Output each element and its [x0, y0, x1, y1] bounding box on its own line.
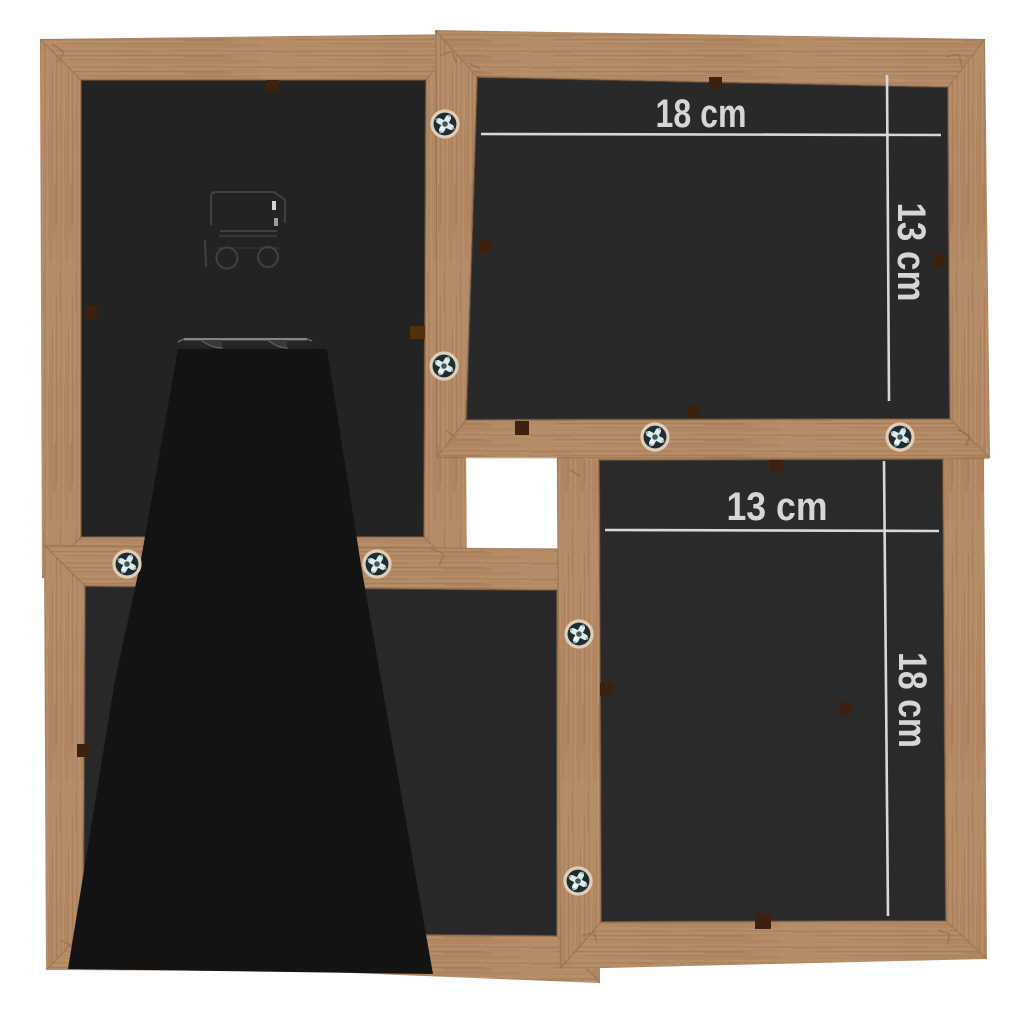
svg-text:18 cm: 18 cm [656, 92, 747, 136]
svg-text:13 cm: 13 cm [727, 485, 828, 529]
svg-text:13 cm: 13 cm [889, 203, 933, 302]
svg-text:18 cm: 18 cm [890, 652, 934, 748]
